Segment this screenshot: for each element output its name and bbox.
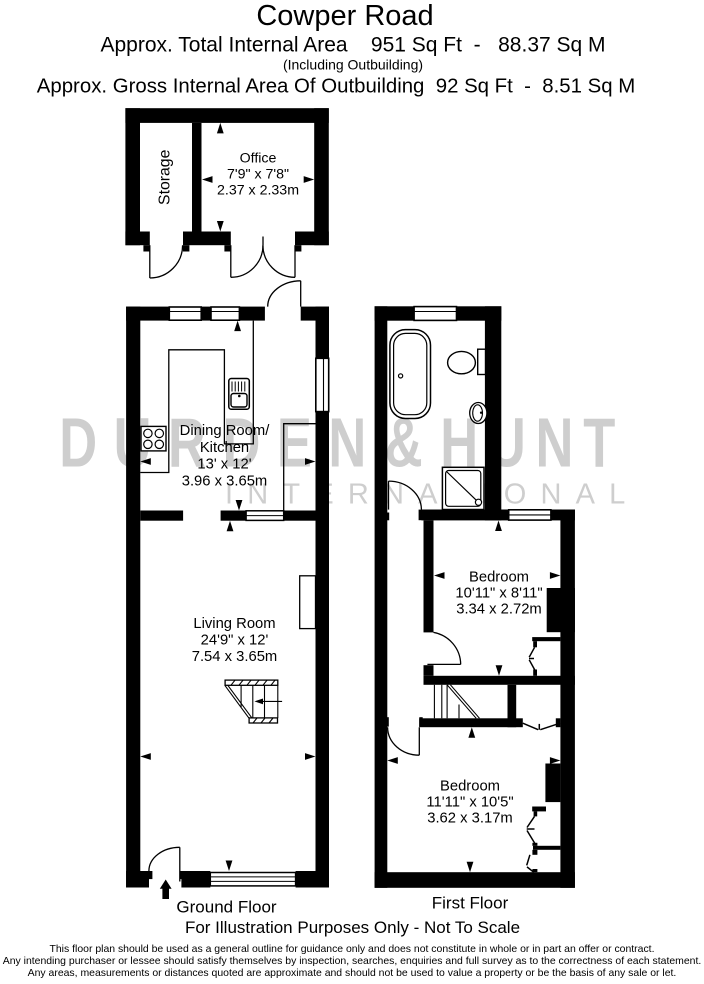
svg-text:Bedroom: Bedroom xyxy=(469,569,529,585)
svg-text:Cowper Road: Cowper Road xyxy=(256,0,433,32)
svg-text:10'11" x 8'11": 10'11" x 8'11" xyxy=(455,586,542,602)
svg-text:3.62 x 3.17m: 3.62 x 3.17m xyxy=(427,811,513,827)
svg-text:Storage: Storage xyxy=(157,149,174,205)
svg-text:Any intending purchaser or les: Any intending purchaser or lessee should… xyxy=(3,956,702,967)
svg-text:13' x 12': 13' x 12' xyxy=(197,457,251,473)
svg-text:2.37 x 2.33m: 2.37 x 2.33m xyxy=(217,183,299,199)
svg-text:Kitchen: Kitchen xyxy=(200,440,249,456)
svg-text:Any areas, measurements or dis: Any areas, measurements or distances quo… xyxy=(28,968,677,979)
svg-text:Office: Office xyxy=(240,150,277,166)
svg-text:For Illustration Purposes Only: For Illustration Purposes Only - Not To … xyxy=(185,918,520,937)
svg-text:7.54 x 3.65m: 7.54 x 3.65m xyxy=(192,649,278,665)
svg-text:This floor plan should be used: This floor plan should be used as a gene… xyxy=(50,944,655,955)
svg-text:Approx. Total Internal Area: Approx. Total Internal Area 951 Sq Ft - … xyxy=(100,34,605,57)
svg-text:Approx. Gross Internal Area Of: Approx. Gross Internal Area Of Outbuildi… xyxy=(37,76,635,98)
svg-text:First Floor: First Floor xyxy=(432,894,509,913)
svg-text:Bedroom: Bedroom xyxy=(440,779,500,795)
svg-text:INTERNATIONAL: INTERNATIONAL xyxy=(225,479,639,511)
svg-text:7'9" x 7'8": 7'9" x 7'8" xyxy=(227,167,289,183)
svg-text:11'11" x 10'5": 11'11" x 10'5" xyxy=(426,795,513,811)
svg-text:3.34 x 2.72m: 3.34 x 2.72m xyxy=(456,602,542,618)
svg-text:3.96 x 3.65m: 3.96 x 3.65m xyxy=(182,474,268,490)
svg-text:Ground Floor: Ground Floor xyxy=(176,898,276,917)
svg-text:24'9" x 12': 24'9" x 12' xyxy=(201,633,269,649)
svg-text:Living Room: Living Room xyxy=(193,616,275,632)
svg-text:Dining Room/: Dining Room/ xyxy=(180,423,271,439)
svg-text:(Including Outbuilding): (Including Outbuilding) xyxy=(283,57,423,73)
